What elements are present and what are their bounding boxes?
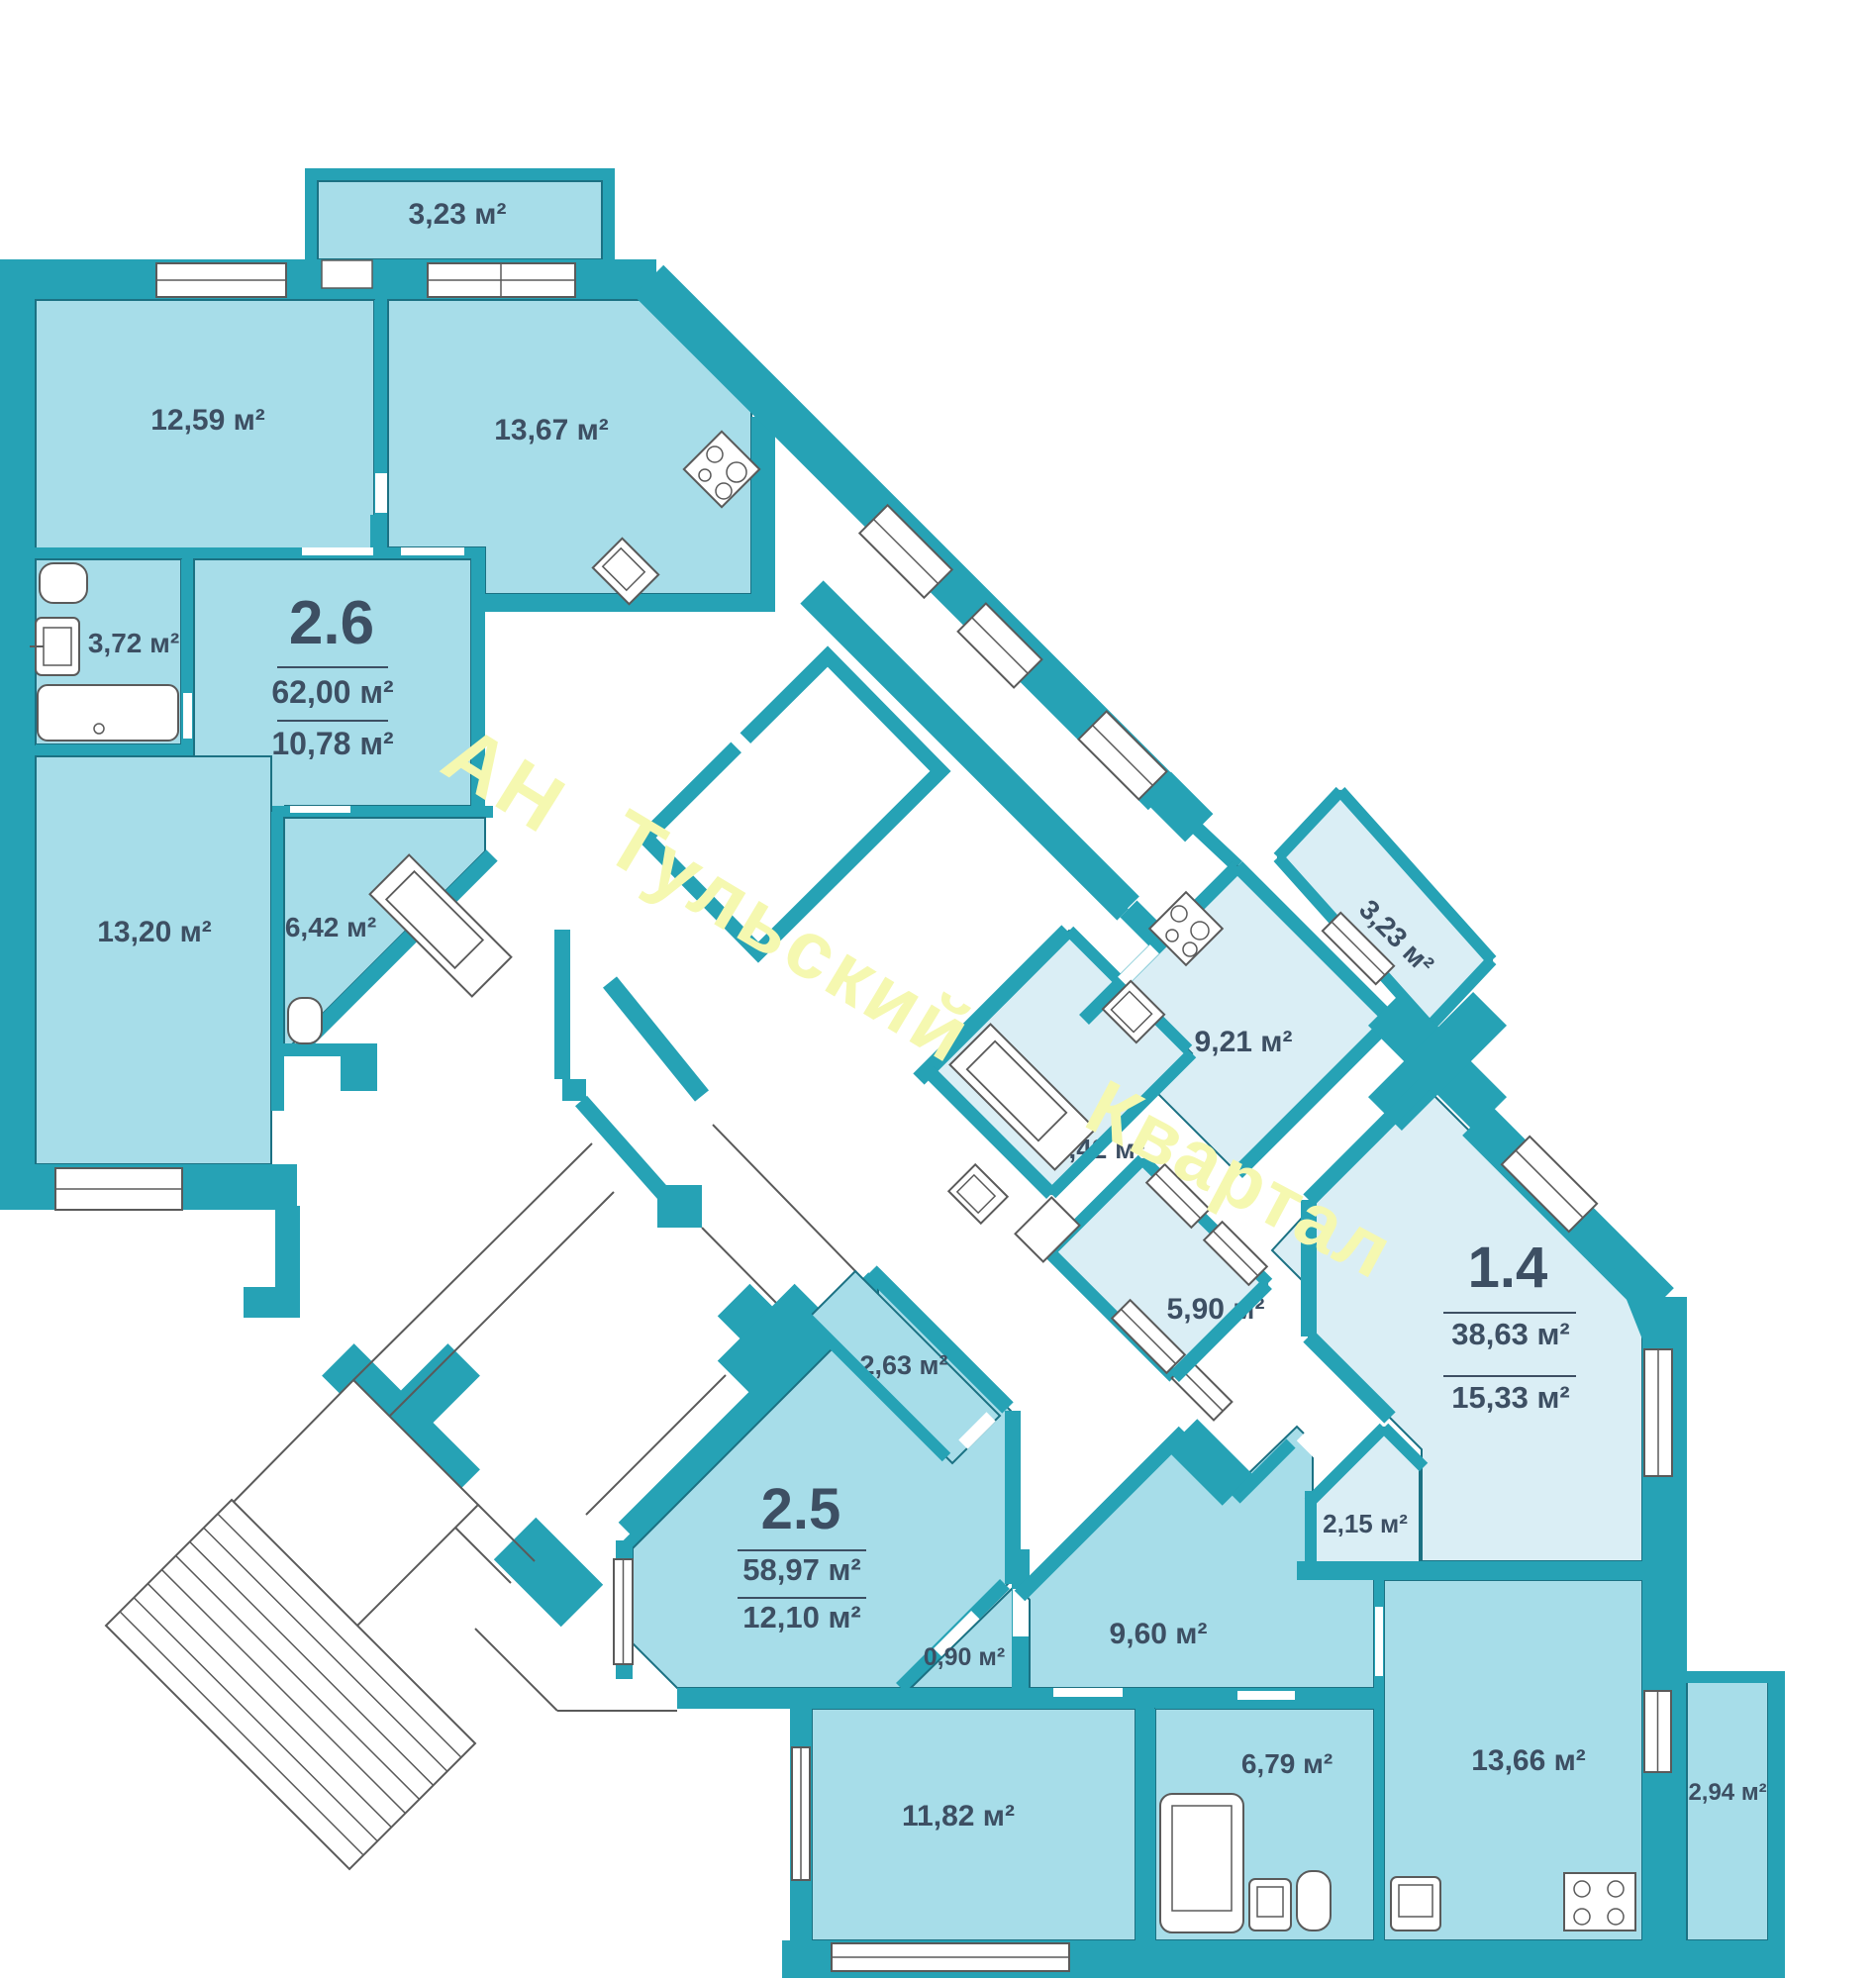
svg-text:10,78 м²: 10,78 м² <box>271 726 393 761</box>
svg-text:2.5: 2.5 <box>761 1477 841 1541</box>
svg-text:12,59 м²: 12,59 м² <box>150 404 265 437</box>
svg-text:38,63 м²: 38,63 м² <box>1451 1317 1569 1351</box>
svg-text:9,60 м²: 9,60 м² <box>1110 1618 1208 1650</box>
svg-text:12,10 м²: 12,10 м² <box>742 1600 860 1634</box>
svg-text:6,42 м²: 6,42 м² <box>285 912 376 942</box>
svg-text:2,94 м²: 2,94 м² <box>1688 1779 1766 1806</box>
svg-text:13,67 м²: 13,67 м² <box>494 414 609 446</box>
svg-text:6,79 м²: 6,79 м² <box>1241 1748 1333 1779</box>
svg-text:11,82 м²: 11,82 м² <box>902 1800 1015 1832</box>
svg-text:15,33 м²: 15,33 м² <box>1451 1380 1569 1415</box>
svg-text:3,72 м²: 3,72 м² <box>88 628 179 658</box>
svg-text:3,23 м²: 3,23 м² <box>409 198 507 231</box>
svg-text:62,00 м²: 62,00 м² <box>271 674 393 710</box>
svg-text:1.4: 1.4 <box>1468 1236 1548 1300</box>
svg-text:58,97 м²: 58,97 м² <box>742 1552 860 1587</box>
svg-text:0,90 м²: 0,90 м² <box>924 1643 1005 1671</box>
svg-text:2,15 м²: 2,15 м² <box>1323 1509 1408 1538</box>
svg-text:2.6: 2.6 <box>289 589 374 657</box>
svg-text:13,66 м²: 13,66 м² <box>1471 1744 1586 1777</box>
svg-text:13,20 м²: 13,20 м² <box>97 916 212 948</box>
svg-text:9,21 м²: 9,21 м² <box>1195 1026 1293 1058</box>
